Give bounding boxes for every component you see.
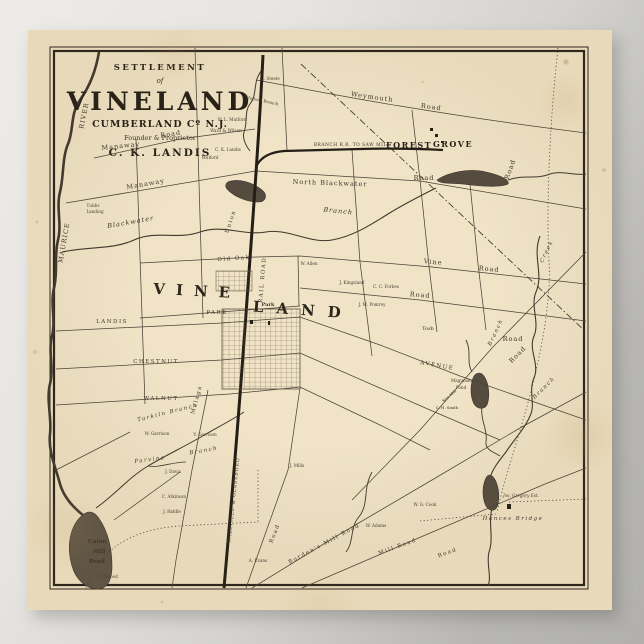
title-vineland: VINELAND: [66, 87, 254, 116]
forest-grove-outlet: [508, 173, 586, 180]
vineland-map: SETTLEMENT of VINELAND CUMBERLAND Cº N.J…: [28, 30, 612, 610]
mill-road-line: [302, 468, 586, 588]
label-j-kingsland: J. Kingsland: [338, 280, 365, 285]
label-road-e2: Road: [409, 290, 430, 300]
label-mulford: Mulford: [201, 155, 218, 160]
label-walnut-ave: WALNUT: [143, 396, 178, 402]
label-j-riddle: J. Riddle: [162, 509, 181, 514]
label-j-elwood: J. Elwood: [97, 574, 118, 579]
label-saw-mill: Saw Mill: [441, 388, 458, 403]
label-wl-mulford: W. L. Mulford: [218, 117, 247, 122]
label-branch-south: Branch: [188, 446, 219, 457]
label-union-pond-3: Pond: [89, 559, 105, 565]
title-cumberland: CUMBERLAND Cº N.J.: [92, 119, 228, 130]
label-road-sw: Road: [268, 523, 281, 544]
sw-road1: [56, 432, 130, 470]
label-road-right-vert: Road: [503, 158, 518, 180]
label-jm-pomroy: J. M. Pomroy: [358, 302, 387, 307]
label-road-s2: Road: [437, 547, 458, 560]
label-ch-smith: C. H. Smith: [436, 405, 459, 410]
label-old-oak: Old Oak: [217, 255, 251, 263]
forest-grove-building1: [430, 128, 433, 131]
label-road-e3: Road: [503, 335, 524, 343]
label-rail-road: RAIL ROAD: [258, 257, 268, 304]
town-center-building1: [250, 320, 253, 324]
label-magunshe-2: Pond: [456, 385, 467, 390]
label-manaway2: Manaway: [126, 177, 166, 192]
map-labels: SETTLEMENT of VINELAND CUMBERLAND Cº N.J…: [57, 63, 557, 579]
label-weymouth-road: Road: [420, 102, 442, 113]
magunshe-pond-shape: [471, 373, 489, 408]
dashed-railroad: [301, 64, 586, 332]
label-hances-bridge: Hances Bridge: [482, 516, 544, 522]
label-mill-road: Mill Road: [378, 537, 418, 556]
map-poster: SETTLEMENT of VINELAND CUMBERLAND Cº N.J…: [28, 30, 612, 610]
hances-bridge-building: [507, 504, 511, 509]
label-malaga: Malaga: [190, 385, 203, 415]
label-v-garrison: V. Garrison: [192, 432, 217, 437]
label-w-garrison: W. Garrison: [145, 431, 170, 436]
label-magunshe-1: Magunshe: [451, 378, 474, 383]
label-weymouth: Weymouth: [351, 90, 394, 104]
label-landis-ave: LANDIS: [96, 319, 128, 325]
label-north-blackwater: North Blackwater: [293, 178, 368, 189]
label-parvins: Parvins: [133, 455, 166, 465]
label-union-pond-2: Mill: [93, 549, 105, 555]
label-union-pond-1: Union: [88, 539, 107, 545]
label-branch-mid: Branch: [322, 205, 353, 216]
label-avenue: AVENUE: [419, 360, 455, 372]
label-grove: GROVE: [433, 139, 473, 149]
landis-ave-line: [56, 317, 586, 420]
label-gregory-estate: Jos. Gregory Est.: [502, 493, 539, 498]
label-branch-east1: Branch: [487, 318, 505, 348]
south-center-stream: [346, 472, 372, 552]
label-w-allen: W. Allen: [300, 261, 317, 266]
label-j-davis: J. Davis: [164, 469, 181, 474]
label-creek: Creek: [539, 239, 555, 263]
label-road-e4: Road: [507, 344, 527, 364]
label-w-adams: W. Adams: [366, 523, 387, 528]
ns-road-283: [282, 48, 287, 150]
town-grid-main: [222, 309, 300, 389]
label-tubbs-2: Landing: [86, 209, 104, 214]
label-chestnut-ave: CHESTNUT: [133, 359, 179, 365]
label-north-blackwater-road: Road: [414, 174, 435, 182]
label-park-square: Park: [262, 302, 275, 308]
magunshe-inlet: [466, 340, 472, 372]
label-wg-cook: W. G. Cook: [414, 502, 437, 507]
diagonal-road-ne: [352, 252, 586, 500]
label-j-mills: J. Mills: [289, 463, 304, 468]
label-cc-forbes: C. C. Forbes: [373, 284, 399, 289]
forest-grove-building2: [435, 134, 438, 137]
upper-pond: [226, 180, 266, 202]
walnut-ave-line: [56, 387, 430, 450]
label-vine: Vine: [423, 257, 443, 267]
title-of: of: [157, 77, 165, 85]
label-blackwater: Blackwater: [106, 214, 155, 230]
label-a-evans: A. Evans: [248, 558, 267, 563]
ns-road-east3: [470, 184, 486, 330]
label-tosh: Tosh: [422, 326, 435, 332]
label-forest: FOREST: [386, 140, 432, 150]
big-name-vine: VINE: [152, 280, 242, 303]
label-branch-east2: Branch: [531, 376, 557, 402]
title-settlement: SETTLEMENT: [114, 63, 206, 73]
label-tubbs-1: Tubbs: [86, 203, 99, 208]
branch-railroad: [257, 149, 443, 165]
label-branch-railroad: BRANCH R.R. TO SAW MILL: [314, 143, 390, 148]
label-ck-landis: C. K. Landis: [215, 147, 241, 152]
label-c-atkinson: C. Atkinson: [162, 494, 187, 499]
magunshe-outlet: [482, 406, 500, 456]
malaga-road-line: [172, 390, 208, 588]
label-ward-wilson: Ward & Wilson: [210, 128, 242, 133]
town-center-building2: [268, 321, 270, 325]
label-j-steele: J. Steele: [261, 76, 280, 81]
label-park-ave: PARK: [206, 310, 227, 316]
forest-grove-pond: [437, 170, 508, 186]
